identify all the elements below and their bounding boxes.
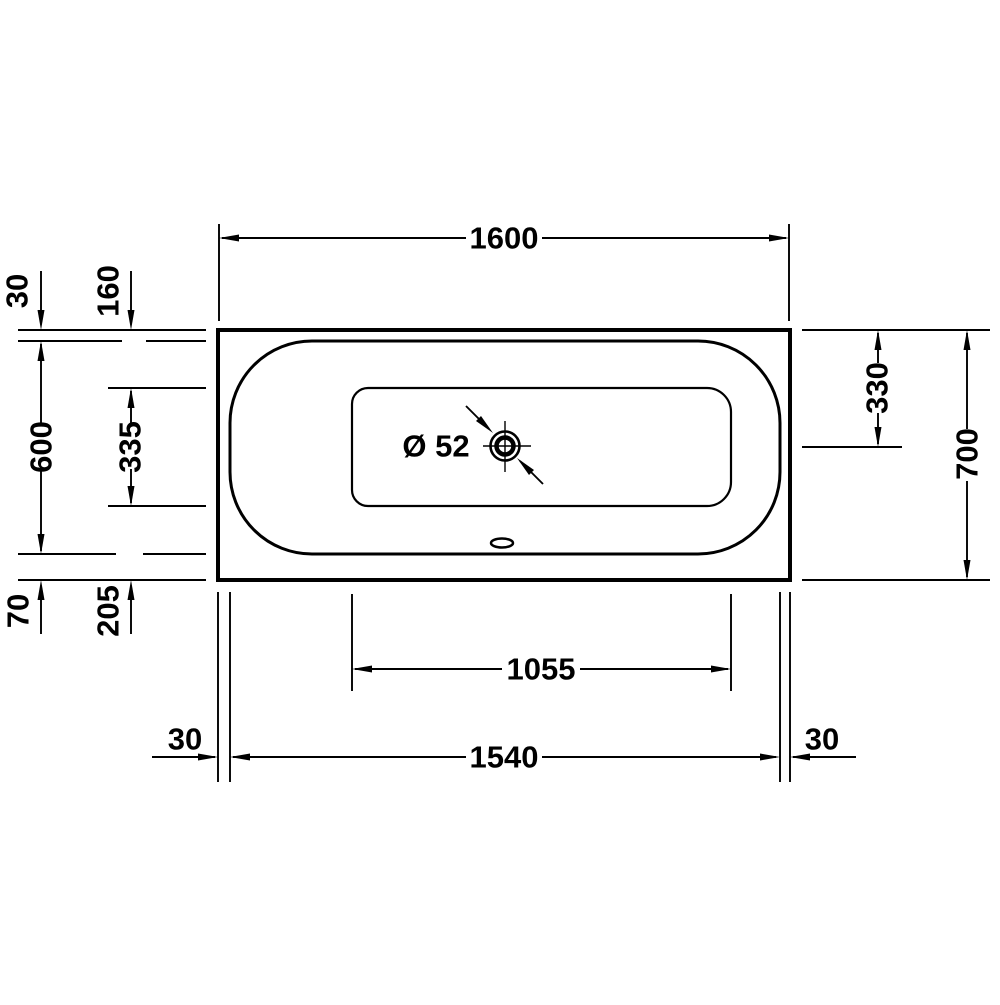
arrowhead [38, 534, 45, 554]
arrowhead [352, 666, 372, 673]
drawing-svg: Ø 52 1600 30 600 70 [0, 0, 1000, 1000]
drain-diameter-label: Ø 52 [402, 429, 469, 464]
tub-plan-view: Ø 52 [218, 330, 790, 580]
arrowhead [711, 666, 731, 673]
dim-rim-top: 30 [0, 271, 45, 330]
drain-center-offset-label: 330 [860, 362, 895, 414]
arrowhead [219, 235, 239, 242]
arrowhead [38, 580, 45, 600]
dim-floor-top-offset: 160 [91, 265, 135, 330]
dim-drain-center-offset: 330 [860, 330, 895, 447]
arrowhead [128, 580, 135, 600]
dim-overall-width: 700 [950, 330, 985, 580]
arrowhead [38, 341, 45, 361]
floor-top-offset-label: 160 [91, 265, 126, 317]
arrowhead [769, 235, 789, 242]
inner-width-label: 600 [24, 421, 59, 473]
floor-width-label: 335 [113, 421, 148, 473]
arrowhead [128, 486, 135, 506]
dim-overall-length: 1600 [219, 221, 789, 322]
dim-floor-length: 1055 [352, 652, 731, 687]
bathtub-technical-drawing: Ø 52 1600 30 600 70 [0, 0, 1000, 1000]
inner-length-label: 1540 [470, 740, 539, 775]
floor-length-label: 1055 [507, 652, 576, 687]
dim-inner-width: 600 [24, 341, 59, 554]
rim-top-label: 30 [0, 274, 35, 308]
rim-end-right-label: 30 [805, 722, 839, 757]
arrowhead [128, 388, 135, 408]
floor-bottom-offset-label: 205 [91, 585, 126, 637]
arrowhead [230, 754, 250, 761]
overall-length-label: 1600 [470, 221, 539, 256]
dim-inner-length: 1540 [230, 740, 780, 775]
overall-width-label: 700 [950, 428, 985, 480]
arrowhead [38, 310, 45, 330]
rim-end-left-label: 30 [168, 722, 202, 757]
arrowhead [128, 310, 135, 330]
dim-rim-end-right: 30 [790, 722, 856, 761]
rim-bottom-label: 70 [1, 594, 36, 628]
arrowhead [760, 754, 780, 761]
dim-rim-end-left: 30 [152, 722, 218, 761]
dim-rim-bottom: 70 [1, 580, 45, 634]
dim-floor-width: 335 [113, 388, 148, 506]
dim-floor-bottom-offset: 205 [91, 580, 135, 637]
